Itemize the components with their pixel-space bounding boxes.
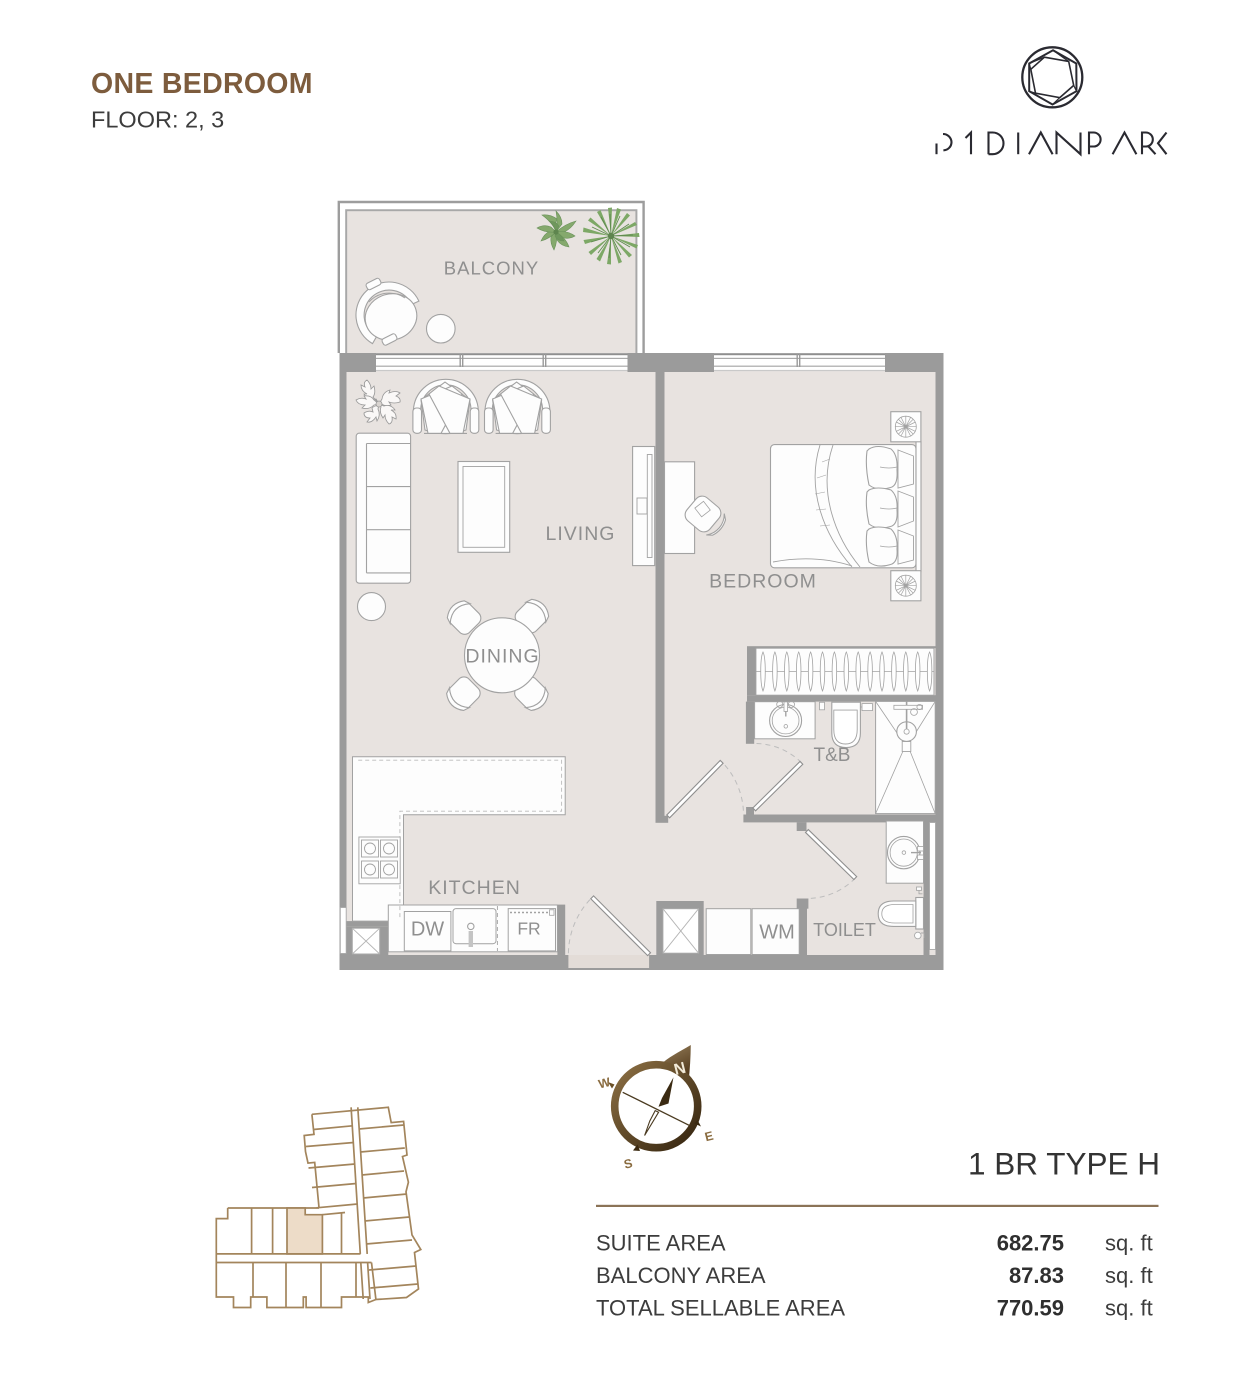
svg-text:BALCONY: BALCONY — [444, 258, 539, 279]
svg-text:LIVING: LIVING — [546, 523, 616, 545]
svg-text:BALCONY AREA: BALCONY AREA — [596, 1263, 766, 1288]
svg-text:sq. ft: sq. ft — [1105, 1295, 1153, 1320]
svg-text:ONE BEDROOM: ONE BEDROOM — [91, 68, 313, 100]
svg-text:SUITE AREA: SUITE AREA — [596, 1231, 726, 1256]
svg-text:BEDROOM: BEDROOM — [709, 571, 817, 593]
svg-text:T&B: T&B — [814, 745, 851, 766]
svg-text:TOTAL SELLABLE AREA: TOTAL SELLABLE AREA — [596, 1295, 845, 1320]
svg-text:KITCHEN: KITCHEN — [428, 877, 521, 899]
svg-text:sq. ft: sq. ft — [1105, 1231, 1153, 1256]
svg-text:FLOOR: 2, 3: FLOOR: 2, 3 — [91, 107, 224, 133]
svg-text:770.59: 770.59 — [997, 1295, 1064, 1320]
svg-text:682.75: 682.75 — [997, 1231, 1064, 1256]
svg-text:1 BR TYPE H: 1 BR TYPE H — [968, 1146, 1160, 1182]
svg-text:TOILET: TOILET — [813, 920, 876, 940]
svg-text:87.83: 87.83 — [1009, 1263, 1064, 1288]
svg-text:WM: WM — [759, 922, 795, 944]
svg-text:sq. ft: sq. ft — [1105, 1263, 1153, 1288]
svg-text:DINING: DINING — [465, 646, 539, 668]
svg-text:FR: FR — [517, 919, 540, 939]
svg-text:DW: DW — [411, 919, 444, 941]
